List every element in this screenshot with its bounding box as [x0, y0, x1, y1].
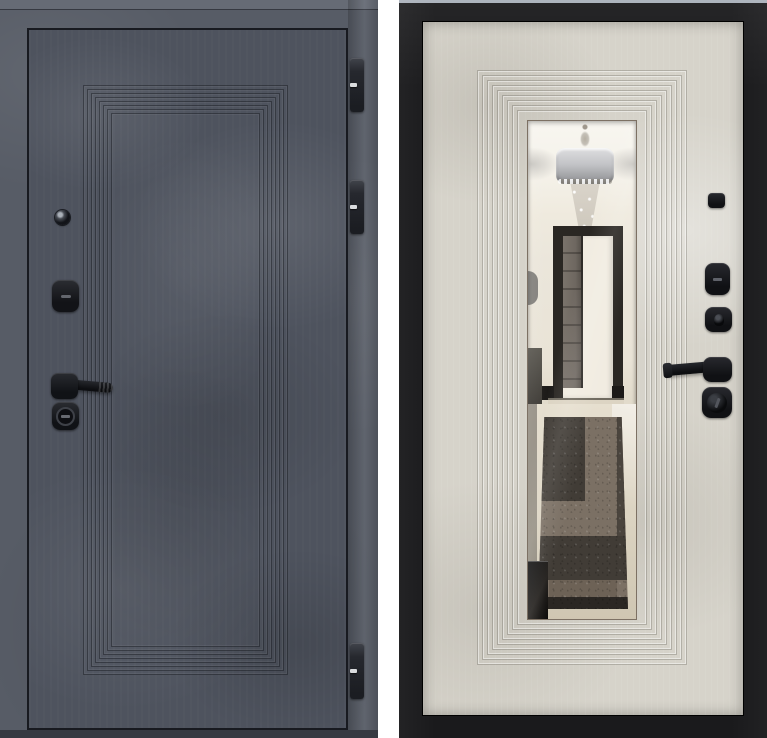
interior-cylinder-cover [705, 263, 730, 295]
interior-lock-cylinder [702, 387, 732, 418]
lever-knurl-grip [98, 382, 113, 393]
hinge-top [350, 58, 364, 112]
keyhole-slot [61, 415, 70, 418]
hinge-pin [350, 669, 357, 673]
exterior-door-photo [0, 0, 378, 738]
doorway-reflection [553, 226, 623, 398]
cylinder-cover [52, 280, 79, 312]
rug-speckle-texture [538, 417, 628, 609]
door-product-photo [0, 0, 767, 738]
chandelier-hook [578, 121, 592, 148]
interior-keyhole-plate [705, 307, 732, 332]
door-panel-lines [563, 236, 581, 388]
interior-door-photo [399, 0, 767, 738]
wall-object-reflection [528, 271, 538, 305]
exterior-door-leaf [27, 28, 348, 730]
cover-slot [61, 295, 71, 298]
exterior-handle-escutcheon [51, 373, 78, 399]
exterior-frame-top-rail [0, 0, 378, 10]
chandelier-shade-rim [558, 179, 612, 184]
hinge-pin [350, 83, 357, 87]
full-length-mirror [527, 120, 637, 620]
hallway-rug [538, 417, 628, 609]
hinge-upper-middle [350, 180, 364, 234]
chandelier-drum-shade [556, 148, 614, 184]
interior-door-leaf [423, 22, 743, 715]
hallway-floor-reflection [528, 404, 637, 620]
exterior-inner-panel [113, 115, 258, 645]
lever-end-cap [663, 363, 673, 379]
open-interior-door [563, 236, 583, 388]
peephole [55, 210, 70, 225]
cover-slot [713, 278, 722, 281]
keyhole [714, 314, 724, 326]
exterior-threshold [0, 730, 378, 738]
interior-handle-escutcheon [703, 357, 732, 382]
glossy-furniture-reflection [528, 561, 548, 620]
exterior-panel-molding [83, 85, 288, 675]
hinge-pin [350, 205, 357, 209]
floor-shadow [528, 404, 537, 564]
console-reflection [528, 348, 542, 404]
exterior-lock-cylinder [52, 402, 79, 430]
hinge-bottom [350, 643, 364, 699]
doorbell-button [708, 193, 725, 208]
